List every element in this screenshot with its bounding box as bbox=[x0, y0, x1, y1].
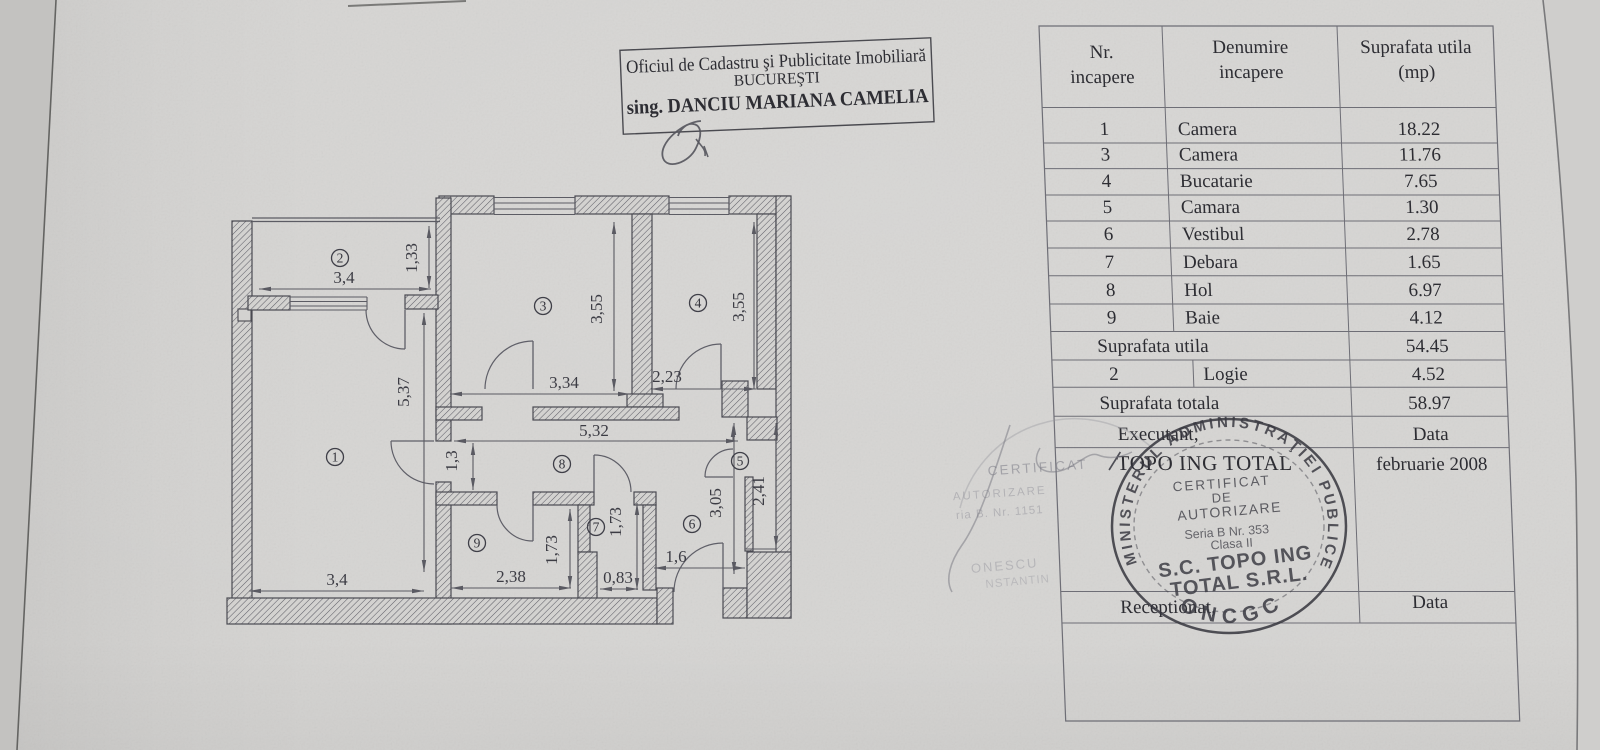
svg-text:Bucatarie: Bucatarie bbox=[1180, 171, 1254, 192]
svg-text:2,41: 2,41 bbox=[749, 476, 768, 506]
svg-text:Hol: Hol bbox=[1184, 280, 1213, 301]
svg-text:incapere: incapere bbox=[1070, 67, 1135, 88]
svg-text:Suprafata utila: Suprafata utila bbox=[1360, 37, 1473, 58]
svg-text:6: 6 bbox=[1103, 224, 1113, 245]
svg-text:2,38: 2,38 bbox=[496, 567, 526, 586]
svg-text:februarie 2008: februarie 2008 bbox=[1376, 454, 1488, 475]
svg-text:5: 5 bbox=[737, 454, 744, 469]
svg-text:4.12: 4.12 bbox=[1409, 308, 1443, 329]
svg-text:5,32: 5,32 bbox=[579, 421, 609, 440]
svg-text:Suprafata totala: Suprafata totala bbox=[1099, 393, 1220, 414]
svg-text:1,33: 1,33 bbox=[402, 243, 421, 273]
svg-text:incapere: incapere bbox=[1219, 62, 1284, 83]
svg-text:9: 9 bbox=[474, 536, 481, 551]
svg-text:3,55: 3,55 bbox=[587, 294, 606, 324]
svg-text:3,4: 3,4 bbox=[333, 268, 355, 287]
svg-text:Data: Data bbox=[1412, 424, 1449, 445]
svg-text:Logie: Logie bbox=[1203, 364, 1248, 385]
svg-text:Debara: Debara bbox=[1183, 252, 1239, 273]
svg-text:8: 8 bbox=[1106, 280, 1116, 301]
svg-text:Camera: Camera bbox=[1179, 145, 1239, 166]
svg-text:7.65: 7.65 bbox=[1404, 171, 1438, 192]
svg-text:1.65: 1.65 bbox=[1407, 252, 1441, 273]
svg-text:1,3: 1,3 bbox=[442, 450, 461, 471]
svg-text:Camera: Camera bbox=[1178, 119, 1238, 140]
svg-text:9: 9 bbox=[1107, 308, 1117, 329]
svg-text:3,4: 3,4 bbox=[326, 570, 348, 589]
svg-text:1,6: 1,6 bbox=[665, 547, 686, 566]
svg-text:11.76: 11.76 bbox=[1399, 145, 1442, 166]
svg-text:5: 5 bbox=[1102, 197, 1112, 218]
svg-text:6.97: 6.97 bbox=[1408, 280, 1442, 301]
svg-text:1.30: 1.30 bbox=[1405, 197, 1439, 218]
svg-text:1,73: 1,73 bbox=[606, 507, 625, 537]
svg-text:2: 2 bbox=[1109, 364, 1119, 385]
svg-text:8: 8 bbox=[559, 457, 566, 472]
svg-text:18.22: 18.22 bbox=[1397, 119, 1441, 140]
svg-text:3,55: 3,55 bbox=[729, 292, 748, 322]
svg-text:5,37: 5,37 bbox=[394, 377, 413, 407]
svg-text:1: 1 bbox=[332, 450, 339, 465]
svg-text:7: 7 bbox=[1104, 252, 1114, 273]
svg-text:BUCUREŞTI: BUCUREŞTI bbox=[733, 69, 820, 89]
svg-text:4: 4 bbox=[1101, 171, 1112, 192]
svg-text:Baie: Baie bbox=[1185, 308, 1221, 329]
svg-text:1,73: 1,73 bbox=[542, 535, 561, 565]
svg-text:1: 1 bbox=[1099, 119, 1109, 140]
svg-text:4: 4 bbox=[695, 296, 702, 311]
svg-text:58.97: 58.97 bbox=[1408, 393, 1452, 414]
svg-text:Nr.: Nr. bbox=[1089, 42, 1114, 63]
svg-text:3,05: 3,05 bbox=[706, 488, 725, 518]
svg-text:Vestibul: Vestibul bbox=[1182, 224, 1245, 245]
svg-text:3: 3 bbox=[540, 299, 547, 314]
svg-text:(mp): (mp) bbox=[1398, 62, 1436, 83]
svg-text:0,83: 0,83 bbox=[603, 568, 633, 587]
svg-text:2: 2 bbox=[337, 251, 344, 266]
svg-text:Denumire: Denumire bbox=[1212, 37, 1289, 58]
svg-text:2.78: 2.78 bbox=[1406, 224, 1440, 245]
svg-text:3: 3 bbox=[1100, 145, 1110, 166]
svg-text:Camara: Camara bbox=[1181, 197, 1241, 218]
svg-text:Data: Data bbox=[1412, 592, 1449, 613]
svg-text:Suprafata utila: Suprafata utila bbox=[1097, 336, 1210, 357]
svg-text:2,23: 2,23 bbox=[652, 367, 682, 386]
svg-text:7: 7 bbox=[593, 520, 600, 535]
svg-text:4.52: 4.52 bbox=[1411, 364, 1445, 385]
svg-text:54.45: 54.45 bbox=[1406, 336, 1450, 357]
svg-text:6: 6 bbox=[689, 517, 696, 532]
svg-text:3,34: 3,34 bbox=[549, 373, 579, 392]
